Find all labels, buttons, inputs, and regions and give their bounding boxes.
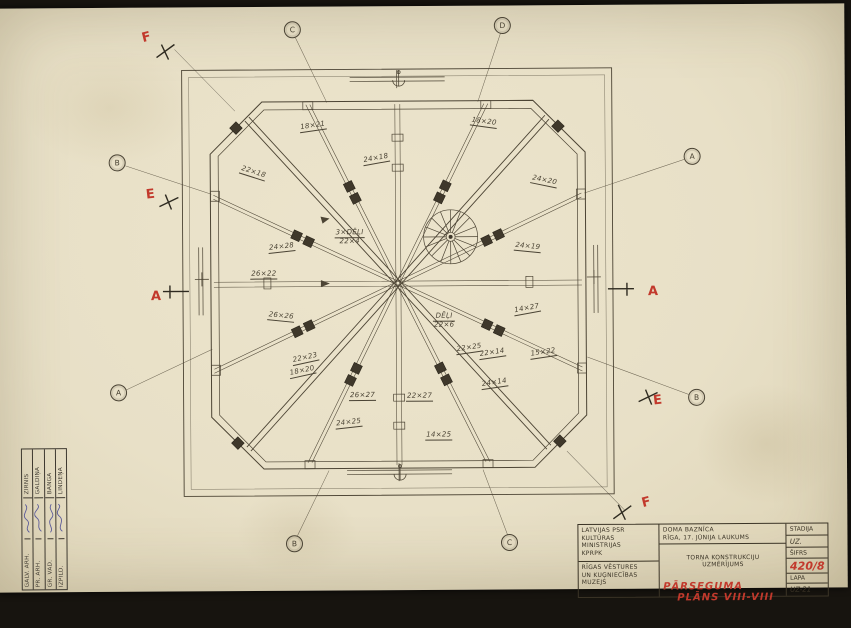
page-label: LAPA [787, 574, 828, 584]
axis-anchor-symbols [194, 69, 602, 481]
stamp-row: GR. VAD. BANGA [44, 449, 56, 589]
title-block-project: DOMA BAZNĪCA RĪGA, 17. JŪNIJA LAUKUMS TO… [660, 524, 787, 597]
signature-stamp: GALV. ARH. ZIRNIS PR. ARH. GALDIŅA GR. V… [21, 448, 68, 590]
title-block-meta: STADIJA UZ. ŠIFRS 420/8 LAPA UZ-21 [787, 524, 828, 596]
title-block-organization: LATVIJAS PSR KULTŪRAS MINISTRIJAS KPRPK … [578, 525, 660, 597]
museum-name: RĪGAS VĒSTURES UN KUĢNIECĪBAS MUZEJS [579, 562, 660, 597]
sheet-title: PĀRSEGUMA PLĀNS VIII-VIII [663, 569, 783, 614]
signature-scribble [45, 497, 54, 538]
stamp-role: GALV. ARH. [25, 538, 31, 589]
stamp-name: BANGA [47, 449, 53, 497]
code-value: 420/8 [787, 559, 828, 574]
title-block: LATVIJAS PSR KULTŪRAS MINISTRIJAS KPRPK … [577, 523, 828, 599]
stamp-name: ZIRNIS [24, 449, 30, 497]
stamp-row: PR. ARH. GALDIŅA [33, 449, 45, 589]
page-value: UZ-21 [787, 584, 828, 596]
joint-blocks [230, 120, 567, 450]
stamp-name: LINDEŅA [58, 449, 64, 497]
stamp-role: PR. ARH. [36, 538, 42, 589]
roof-beams [213, 103, 583, 466]
stamp-role: IZPILD. [58, 538, 64, 589]
stamp-row: GALV. ARH. ZIRNIS [22, 449, 34, 589]
stamp-name: GALDIŅA [35, 449, 41, 497]
signature-stamp-table: GALV. ARH. ZIRNIS PR. ARH. GALDIŅA GR. V… [21, 448, 68, 590]
stage-label: STADIJA [787, 524, 828, 536]
stage-value: UZ. [787, 536, 828, 548]
code-label: ŠIFRS [787, 548, 828, 559]
object-name: DOMA BAZNĪCA RĪGA, 17. JŪNIJA LAUKUMS [660, 524, 786, 545]
drawing-sheet: 18×2118×2024×1824×2022×1824×283×DĒĻI22×4… [0, 3, 848, 592]
signature-scribble [57, 497, 66, 538]
signature-scribble [34, 497, 43, 538]
sheet-title-line2: PLĀNS VIII-VIII [677, 591, 783, 603]
project-cell: TORŅA KONSTRUKCIJU UZMĒRĪJUMS PĀRSEGUMA … [660, 544, 786, 624]
spiral-stair [423, 210, 477, 264]
plan-linework [0, 3, 849, 608]
project-name: TORŅA KONSTRUKCIJU UZMĒRĪJUMS [686, 553, 759, 568]
organization-name: LATVIJAS PSR KULTŪRAS MINISTRIJAS KPRPK [578, 525, 659, 562]
stamp-role: GR. VAD. [47, 538, 53, 589]
signature-scribble [23, 497, 32, 538]
sheet-title-line1: PĀRSEGUMA [663, 581, 743, 592]
stamp-row: IZPILD. LINDEŅA [56, 449, 67, 589]
